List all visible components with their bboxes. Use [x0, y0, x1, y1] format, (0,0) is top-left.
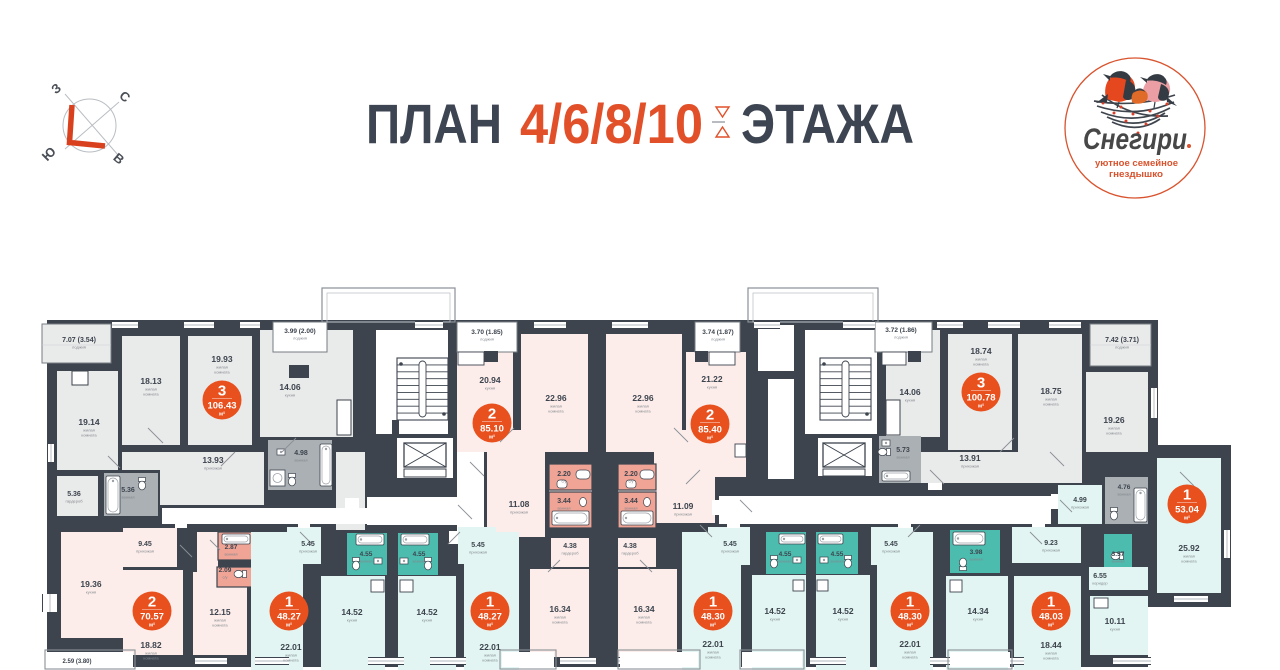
svg-text:2.59 (3.80): 2.59 (3.80): [62, 659, 91, 665]
svg-text:4.55: 4.55: [360, 551, 373, 558]
svg-text:70.57: 70.57: [140, 612, 164, 623]
svg-text:9.45: 9.45: [138, 541, 152, 548]
svg-text:3.74 (1.87): 3.74 (1.87): [702, 329, 733, 336]
svg-text:ПЛАН: ПЛАН: [366, 92, 502, 155]
svg-text:ванная: ванная: [294, 458, 307, 463]
svg-text:2.20: 2.20: [624, 471, 638, 478]
svg-text:м²: м²: [149, 622, 155, 629]
svg-text:ванная: ванная: [778, 559, 791, 564]
svg-text:48.27: 48.27: [478, 612, 502, 623]
svg-text:22.01: 22.01: [702, 639, 724, 649]
svg-text:3.57: 3.57: [1112, 551, 1125, 558]
svg-text:14.52: 14.52: [341, 607, 363, 617]
svg-text:4.38: 4.38: [623, 543, 637, 550]
svg-text:22.96: 22.96: [545, 393, 567, 403]
svg-text:ванная: ванная: [412, 559, 425, 564]
svg-text:прихожая: прихожая: [674, 512, 692, 517]
svg-text:9.23: 9.23: [1044, 540, 1058, 547]
svg-text:комната: комната: [212, 623, 228, 628]
svg-text:2.20: 2.20: [557, 471, 571, 478]
svg-text:5.45: 5.45: [723, 541, 737, 548]
svg-text:22.01: 22.01: [899, 639, 921, 649]
svg-text:кухня: кухня: [707, 385, 717, 390]
svg-text:прихожая: прихожая: [961, 464, 979, 469]
svg-text:2: 2: [148, 594, 156, 611]
svg-text:14.52: 14.52: [764, 606, 786, 616]
svg-text:13.93: 13.93: [202, 455, 224, 465]
svg-text:кухня: кухня: [347, 618, 357, 623]
svg-text:прихожая: прихожая: [469, 550, 487, 555]
svg-text:5.45: 5.45: [471, 542, 485, 549]
svg-text:м²: м²: [489, 434, 495, 441]
svg-text:уютное семейное: уютное семейное: [1095, 158, 1178, 168]
svg-text:ванная: ванная: [557, 506, 570, 511]
svg-text:м²: м²: [710, 622, 716, 629]
svg-text:14.52: 14.52: [832, 606, 854, 616]
svg-text:комната: комната: [1181, 559, 1197, 564]
svg-text:4.55: 4.55: [831, 551, 844, 558]
svg-text:5.73: 5.73: [896, 447, 910, 454]
svg-text:85.10: 85.10: [480, 424, 504, 435]
svg-text:1: 1: [285, 594, 293, 611]
svg-text:18.75: 18.75: [1040, 386, 1062, 396]
svg-text:2: 2: [488, 406, 496, 423]
svg-text:м²: м²: [487, 622, 493, 629]
svg-text:комната: комната: [143, 656, 159, 661]
svg-text:м²: м²: [286, 622, 292, 629]
svg-text:комната: комната: [1043, 402, 1059, 407]
svg-text:ванная: ванная: [359, 559, 372, 564]
svg-text:кухня: кухня: [1110, 627, 1120, 632]
svg-text:3.99 (2.00): 3.99 (2.00): [284, 328, 315, 335]
svg-text:16.34: 16.34: [633, 604, 655, 614]
svg-text:комната: комната: [705, 655, 721, 660]
svg-text:кухня: кухня: [770, 617, 780, 622]
svg-text:Снегири: Снегири: [1083, 123, 1187, 156]
svg-text:м²: м²: [1048, 622, 1054, 629]
svg-text:ванная: ванная: [1111, 559, 1124, 564]
svg-text:комната: комната: [1106, 431, 1122, 436]
svg-text:4.55: 4.55: [413, 551, 426, 558]
svg-text:25.92: 25.92: [1178, 543, 1200, 553]
svg-text:ванная: ванная: [969, 557, 982, 562]
svg-text:комната: комната: [902, 655, 918, 660]
svg-text:1: 1: [1047, 594, 1055, 611]
svg-text:3.98: 3.98: [970, 549, 983, 556]
svg-text:16.34: 16.34: [549, 604, 571, 614]
svg-text:гардероб: гардероб: [621, 551, 639, 556]
svg-text:прихожая: прихожая: [1071, 505, 1089, 510]
svg-text:22.96: 22.96: [632, 393, 654, 403]
svg-text:18.13: 18.13: [140, 376, 162, 386]
svg-text:19.26: 19.26: [1103, 415, 1125, 425]
svg-text:с/у: с/у: [222, 575, 227, 580]
svg-text:гардероб: гардероб: [561, 551, 579, 556]
svg-text:ванная: ванная: [1117, 492, 1130, 497]
svg-text:4.76: 4.76: [1118, 484, 1131, 491]
svg-text:кухня: кухня: [485, 386, 495, 391]
svg-text:лоджия: лоджия: [1115, 345, 1129, 350]
svg-text:10.11: 10.11: [1105, 616, 1126, 626]
svg-text:м²: м²: [978, 403, 984, 410]
svg-text:комната: комната: [635, 409, 651, 414]
svg-text:кухня: кухня: [422, 618, 432, 623]
svg-text:106.43: 106.43: [207, 401, 236, 412]
svg-text:4.99: 4.99: [1073, 497, 1087, 504]
svg-text:3.72 (1.86): 3.72 (1.86): [885, 327, 916, 334]
svg-text:комната: комната: [636, 620, 652, 625]
svg-text:комната: комната: [552, 620, 568, 625]
svg-text:21.22: 21.22: [701, 374, 723, 384]
svg-text:18.44: 18.44: [1040, 640, 1062, 650]
svg-text:м²: м²: [907, 622, 913, 629]
svg-text:комната: комната: [973, 362, 989, 367]
svg-text:ванная: ванная: [121, 495, 134, 500]
svg-text:53.04: 53.04: [1175, 505, 1199, 516]
svg-text:комната: комната: [1043, 656, 1059, 661]
svg-text:лоджия: лоджия: [894, 335, 908, 340]
svg-text:5.45: 5.45: [301, 541, 315, 548]
svg-text:кухня: кухня: [86, 590, 96, 595]
svg-text:12.15: 12.15: [209, 607, 231, 617]
svg-text:5.36: 5.36: [121, 487, 135, 494]
svg-text:коридор: коридор: [1092, 581, 1108, 586]
svg-text:1: 1: [906, 594, 914, 611]
svg-text:прихожая: прихожая: [721, 549, 739, 554]
svg-text:22.01: 22.01: [479, 642, 501, 652]
svg-text:кухня: кухня: [973, 617, 983, 622]
svg-text:комната: комната: [214, 370, 230, 375]
svg-text:19.93: 19.93: [211, 354, 233, 364]
svg-text:14.06: 14.06: [279, 382, 301, 392]
svg-text:1: 1: [486, 594, 494, 611]
svg-text:5.45: 5.45: [884, 541, 898, 548]
svg-text:кухня: кухня: [905, 398, 915, 403]
svg-text:85.40: 85.40: [698, 425, 722, 436]
svg-text:11.09: 11.09: [673, 501, 694, 511]
svg-text:4/6/8/10: 4/6/8/10: [520, 92, 703, 155]
svg-text:48.27: 48.27: [277, 612, 301, 623]
svg-text:2.09: 2.09: [219, 567, 232, 574]
svg-text:комната: комната: [283, 658, 299, 663]
svg-text:кухня: кухня: [838, 617, 848, 622]
svg-text:кухня: кухня: [285, 393, 295, 398]
svg-text:прихожая: прихожая: [204, 466, 222, 471]
svg-text:6.55: 6.55: [1093, 573, 1107, 580]
svg-text:2: 2: [706, 407, 714, 424]
svg-text:м²: м²: [1184, 515, 1190, 522]
svg-text:48.03: 48.03: [1039, 612, 1063, 623]
svg-text:3: 3: [218, 383, 226, 400]
svg-text:с/у: с/у: [561, 479, 566, 484]
svg-text:комната: комната: [482, 658, 498, 663]
svg-text:3.70 (1.85): 3.70 (1.85): [471, 329, 502, 336]
svg-text:прихожая: прихожая: [1042, 548, 1060, 553]
svg-text:13.91: 13.91: [959, 453, 981, 463]
svg-text:ванная: ванная: [624, 506, 637, 511]
svg-text:18.82: 18.82: [140, 640, 162, 650]
svg-text:4.38: 4.38: [563, 543, 577, 550]
svg-text:19.36: 19.36: [80, 579, 102, 589]
svg-text:комната: комната: [81, 433, 97, 438]
svg-text:комната: комната: [143, 392, 159, 397]
svg-text:лоджия: лоджия: [711, 337, 725, 342]
svg-text:прихожая: прихожая: [299, 549, 317, 554]
svg-text:14.34: 14.34: [967, 606, 989, 616]
svg-text:18.74: 18.74: [970, 346, 992, 356]
svg-text:ванная: ванная: [830, 559, 843, 564]
svg-text:лоджия: лоджия: [72, 345, 86, 350]
svg-text:прихожая: прихожая: [136, 549, 154, 554]
svg-text:комната: комната: [548, 409, 564, 414]
svg-text:прихожая: прихожая: [882, 549, 900, 554]
svg-text:3: 3: [977, 375, 985, 392]
svg-text:лоджия: лоджия: [293, 336, 307, 341]
svg-text:гнездышко: гнездышко: [1109, 169, 1164, 179]
svg-text:ЭТАЖА: ЭТАЖА: [741, 92, 914, 155]
svg-text:2.87: 2.87: [225, 544, 238, 551]
svg-text:с/у: с/у: [628, 479, 633, 484]
svg-text:4.98: 4.98: [294, 450, 308, 457]
svg-text:гардероб: гардероб: [65, 499, 83, 504]
svg-text:лоджия: лоджия: [480, 337, 494, 342]
svg-text:1: 1: [1183, 487, 1191, 504]
svg-text:прихожая: прихожая: [510, 510, 528, 515]
svg-text:14.52: 14.52: [416, 607, 438, 617]
svg-text:м²: м²: [219, 411, 225, 418]
svg-text:20.94: 20.94: [479, 375, 501, 385]
svg-text:ванная: ванная: [224, 552, 237, 557]
svg-text:3.44: 3.44: [557, 498, 571, 505]
svg-text:4.55: 4.55: [779, 551, 792, 558]
svg-text:100.78: 100.78: [966, 393, 995, 404]
svg-text:1: 1: [709, 594, 717, 611]
svg-text:3.44: 3.44: [624, 498, 638, 505]
svg-text:14.06: 14.06: [899, 387, 921, 397]
svg-text:48.30: 48.30: [898, 612, 922, 623]
svg-text:11.08: 11.08: [509, 499, 530, 509]
svg-text:м²: м²: [707, 435, 713, 442]
svg-text:ванная: ванная: [896, 455, 909, 460]
svg-text:19.14: 19.14: [78, 417, 100, 427]
svg-text:48.30: 48.30: [701, 612, 725, 623]
svg-text:22.01: 22.01: [280, 642, 302, 652]
svg-text:7.42 (3.71): 7.42 (3.71): [1105, 337, 1139, 344]
svg-text:7.07 (3.54): 7.07 (3.54): [62, 337, 96, 344]
svg-text:5.36: 5.36: [67, 491, 81, 498]
